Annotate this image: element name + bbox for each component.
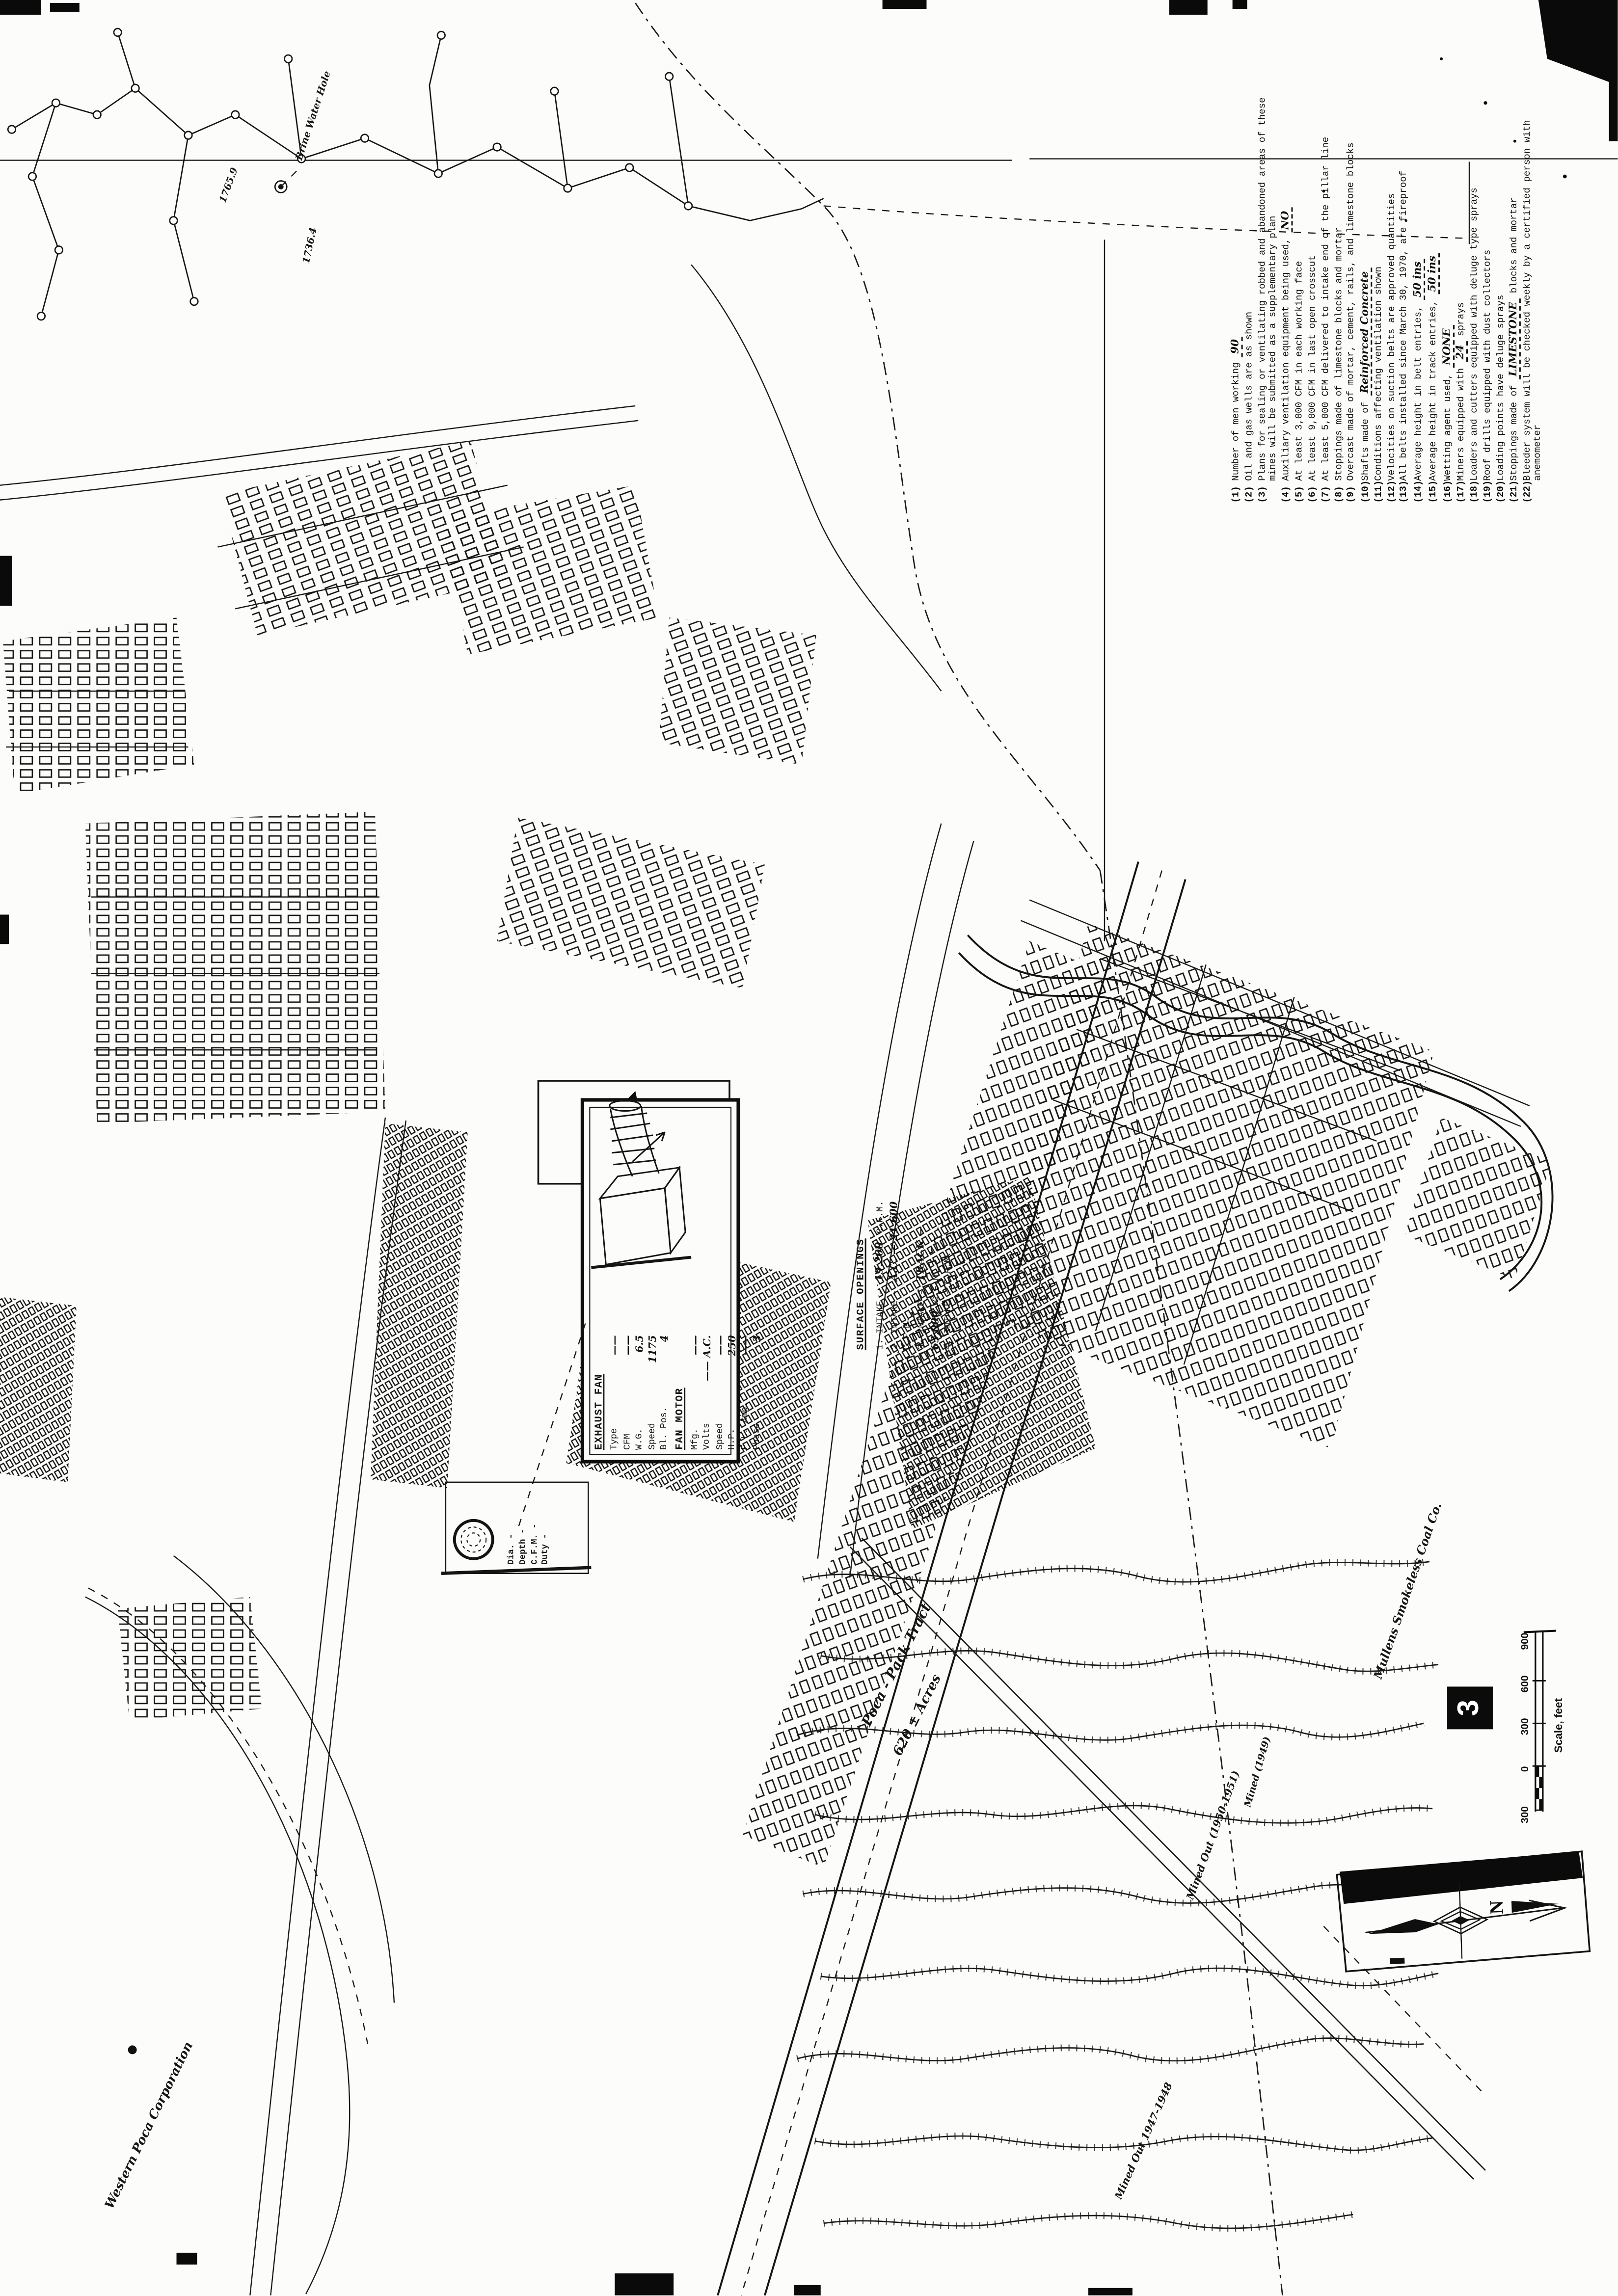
fan-row: Bl. Pos. 4 bbox=[659, 1335, 672, 1450]
note-item: (6)At least 9,000 CFM in last open cross… bbox=[1307, 94, 1318, 503]
scanned-sheet: 900 600 300 0 300 Scale, feet N bbox=[0, 0, 1618, 2296]
note-text: Overcast made of mortar, cement, rails, … bbox=[1346, 142, 1356, 481]
note-number: (4) bbox=[1282, 481, 1292, 503]
note-text: Stoppings made of bbox=[1510, 385, 1520, 481]
motor-field-label: H.P. bbox=[727, 1428, 739, 1450]
note-item: (9)Overcast made of mortar, cement, rail… bbox=[1346, 94, 1356, 503]
note-item: (20)Loading points have deluge sprays bbox=[1495, 94, 1506, 503]
fan-row: Type —— bbox=[609, 1335, 621, 1450]
fan-title: EXHAUST FAN bbox=[594, 1227, 607, 1450]
note-handwritten-value: NO bbox=[1279, 208, 1294, 233]
fan-field-value: —— bbox=[622, 1335, 634, 1355]
fan-motor-row: Speed —— bbox=[715, 1335, 727, 1450]
fan-rows: Type —— CFM —— W.G. 6.5 Speed bbox=[609, 1227, 672, 1450]
motor-field-label: Speed bbox=[715, 1423, 727, 1450]
scale-600: 600 bbox=[1519, 1675, 1531, 1692]
note-text: Average height in track entries, bbox=[1428, 300, 1438, 481]
note-item: (17)Miners equipped with 24 sprays bbox=[1455, 94, 1467, 503]
fan-field-value: —— bbox=[609, 1335, 621, 1355]
opening-quantity: A.C. — 21,600 bbox=[887, 1199, 900, 1284]
note-item: (14)Average height in belt entries, 50 i… bbox=[1412, 94, 1424, 503]
note-item: (15)Average height in track entries, 50 … bbox=[1427, 94, 1438, 503]
shaft-data-row: Depth - bbox=[517, 1488, 529, 1565]
shaft-data-panel: Dia. - Depth - C.F.M. - Duty - bbox=[506, 1488, 574, 1565]
note-handwritten-value: Reinforced Concrete bbox=[1357, 268, 1372, 397]
note-number: (16) bbox=[1442, 481, 1453, 503]
note-text: Wetting agent used, bbox=[1442, 374, 1453, 481]
fan-motor-title: FAN MOTOR bbox=[674, 1227, 687, 1450]
note-number: (1) bbox=[1231, 481, 1241, 503]
sheet-number: 3 bbox=[1453, 1700, 1487, 1716]
note-item: (18)Loaders and cutters equipped with de… bbox=[1470, 94, 1480, 503]
fan-field-label: Type bbox=[609, 1428, 621, 1450]
fan-motor-row: Phase 3 bbox=[752, 1335, 764, 1450]
note-item: (5)At least 3,000 CFM in each working fa… bbox=[1294, 94, 1305, 503]
brine-well-symbol bbox=[275, 168, 300, 193]
note-text: Miners equipped with bbox=[1456, 368, 1467, 481]
note-number: (14) bbox=[1414, 481, 1424, 503]
note-number: (17) bbox=[1456, 481, 1467, 503]
fan-row: CFM —— bbox=[622, 1335, 634, 1450]
note-item: (8)Stoppings made of limestone blocks an… bbox=[1333, 94, 1344, 503]
note-number: (7) bbox=[1321, 481, 1331, 503]
note-text: Bleeder system will be checked weekly by… bbox=[1523, 120, 1543, 481]
note-text: Shafts made of bbox=[1360, 402, 1371, 481]
fan-field-label: CFM bbox=[622, 1434, 634, 1450]
note-number: (15) bbox=[1428, 481, 1438, 503]
fan-motor-row: F.L. Amp. —— bbox=[740, 1335, 752, 1450]
note-number: (22) bbox=[1523, 481, 1533, 503]
note-text: Auxiliary ventilation equipment being us… bbox=[1282, 239, 1292, 481]
note-text: Conditions affecting ventilation shown bbox=[1374, 267, 1384, 481]
note-text: Oil and gas wells are as shown bbox=[1244, 312, 1254, 481]
note-handwritten-value: 24 bbox=[1454, 342, 1468, 362]
note-item: (1)Number of men working 90 bbox=[1230, 94, 1241, 503]
note-handwritten-value: 90 bbox=[1228, 336, 1243, 357]
note-text: All belts installed since March 30, 1970… bbox=[1399, 171, 1409, 481]
opening-label: 2. INTAKE - bbox=[890, 1290, 900, 1350]
motor-field-value: —— A.C. bbox=[702, 1335, 714, 1381]
note-number: (9) bbox=[1346, 481, 1356, 503]
note-number: (13) bbox=[1399, 481, 1409, 503]
note-number: (20) bbox=[1495, 481, 1506, 503]
fan-motor-row: Mfg. —— bbox=[690, 1335, 702, 1450]
fan-motor-row: Volts —— A.C. bbox=[702, 1335, 714, 1450]
opening-label: 4. INTAKE - bbox=[943, 1290, 953, 1350]
exhaust-fan-cartouche: EXHAUST FAN Type —— CFM —— W.G. bbox=[594, 1227, 729, 1450]
note-text: Stoppings made of limestone blocks and m… bbox=[1333, 227, 1344, 481]
mine-map-sheet: 900 600 300 0 300 Scale, feet N bbox=[0, 0, 1618, 2296]
note-item: (13)All belts installed since March 30, … bbox=[1399, 94, 1409, 503]
opening-unit: C.F.M. bbox=[902, 1317, 912, 1350]
surface-openings-rows: 1. INTAKE - 19,200 C.F.M. 2. INTAKE - A.… bbox=[872, 1194, 955, 1350]
surface-opening-row: 4. INTAKE - C.F.M. bbox=[943, 1194, 955, 1350]
fan-field-value: 1175 bbox=[647, 1335, 659, 1363]
scale-0: 0 bbox=[1519, 1766, 1531, 1772]
note-item: (12)Velocities on suction belts are appr… bbox=[1386, 94, 1397, 503]
motor-field-value: —— bbox=[715, 1335, 727, 1355]
scale-caption: Scale, feet bbox=[1552, 1698, 1564, 1753]
note-item: (4)Auxiliary ventilation equipment being… bbox=[1280, 94, 1292, 503]
surface-opening-row: 3. INTAKE - TRACK — 63,000 C.F.M. bbox=[914, 1194, 943, 1350]
note-text: Average height in belt entries, bbox=[1414, 306, 1424, 481]
note-item: (22)Bleeder system will be checked weekl… bbox=[1523, 94, 1544, 503]
motor-field-value: 250 bbox=[727, 1335, 739, 1356]
fan-motor-row: H.P. 250 bbox=[727, 1335, 739, 1450]
fan-row: Speed 1175 bbox=[647, 1335, 659, 1450]
shaft-data-rows: Dia. - Depth - C.F.M. - Duty - bbox=[506, 1488, 574, 1565]
surface-openings-panel: SURFACE OPENINGS 1. INTAKE - 19,200 C.F.… bbox=[856, 1194, 962, 1350]
note-item: (19)Roof drills equipped with dust colle… bbox=[1483, 94, 1493, 503]
scale-900: 900 bbox=[1519, 1633, 1531, 1650]
fan-field-label: Bl. Pos. bbox=[659, 1407, 672, 1450]
note-text: At least 3,000 CFM in each working face bbox=[1294, 261, 1305, 481]
note-handwritten-value: 50 ins bbox=[1411, 259, 1426, 300]
motor-field-value: —— bbox=[740, 1335, 752, 1355]
note-item: (21)Stoppings made of LIMESTONE blocks a… bbox=[1508, 94, 1520, 503]
note-number: (12) bbox=[1386, 481, 1397, 503]
fan-field-label: W.G. bbox=[634, 1428, 647, 1450]
note-number: (18) bbox=[1470, 481, 1480, 503]
note-text-after: blocks and mortar bbox=[1510, 197, 1520, 293]
note-handwritten-value: NONE bbox=[1439, 325, 1454, 368]
fan-field-label: Speed bbox=[647, 1423, 659, 1450]
opening-unit: C.F.M. bbox=[943, 1252, 953, 1284]
motor-field-label: Volts bbox=[702, 1423, 714, 1450]
scale-300b: 300 bbox=[1519, 1806, 1531, 1823]
scale-checker bbox=[1536, 1766, 1543, 1810]
note-item: (3)Plans for sealing or ventilating robb… bbox=[1257, 94, 1278, 503]
note-text: At least 5,000 CFM delivered to intake e… bbox=[1321, 137, 1331, 481]
scale-300a: 300 bbox=[1519, 1718, 1531, 1735]
note-handwritten-value: LIMESTONE bbox=[1507, 299, 1521, 379]
motor-field-value: —— bbox=[690, 1335, 702, 1355]
sheet-number-badge: 3 bbox=[1447, 1686, 1493, 1729]
note-number: (5) bbox=[1294, 481, 1305, 503]
note-number: (6) bbox=[1307, 481, 1318, 503]
shaft-data-row: Duty - bbox=[540, 1488, 552, 1565]
note-item: (10)Shafts made of Reinforced Concrete bbox=[1359, 94, 1371, 503]
notes-panel: (1)Number of men working 90 (2)Oil and g… bbox=[1230, 94, 1591, 503]
note-number: (21) bbox=[1510, 481, 1520, 503]
opening-label: 3. INTAKE - bbox=[917, 1290, 927, 1350]
note-number: (3) bbox=[1257, 481, 1267, 503]
note-item: (11)Conditions affecting ventilation sho… bbox=[1374, 94, 1384, 503]
motor-field-value: 3 bbox=[752, 1335, 764, 1342]
scale-bar: 900 600 300 0 300 Scale, feet bbox=[1519, 1631, 1564, 1823]
fan-field-value: 4 bbox=[659, 1335, 672, 1342]
opening-unit: C.F.M. bbox=[931, 1269, 942, 1302]
note-text: Loading points have deluge sprays bbox=[1495, 295, 1506, 481]
note-number: (10) bbox=[1360, 481, 1371, 503]
note-item: (16)Wetting agent used, NONE bbox=[1441, 94, 1453, 503]
street-grids bbox=[3, 441, 1552, 1868]
note-text: Loaders and cutters equipped with deluge… bbox=[1470, 187, 1480, 481]
north-letter: N bbox=[1486, 1900, 1508, 1915]
opening-unit: C.F.M. bbox=[875, 1201, 886, 1234]
motor-field-label: Phase bbox=[752, 1423, 764, 1450]
note-number: (19) bbox=[1483, 481, 1493, 503]
note-text-after: sprays bbox=[1456, 302, 1467, 336]
motor-field-label: Mfg. bbox=[690, 1428, 702, 1450]
opening-label: 1. INTAKE - bbox=[875, 1290, 886, 1350]
fan-motor-rows: Mfg. —— Volts —— A.C. Speed —— H.P. bbox=[690, 1227, 765, 1450]
note-number: (11) bbox=[1374, 481, 1384, 503]
north-arrow: N bbox=[1336, 1851, 1590, 1972]
shaft-data-row: Dia. - bbox=[506, 1488, 517, 1565]
surface-opening-row: 2. INTAKE - A.C. — 21,600 C.F.M. bbox=[887, 1194, 914, 1350]
fan-row: W.G. 6.5 bbox=[634, 1335, 647, 1450]
surface-openings-title: SURFACE OPENINGS bbox=[856, 1194, 869, 1350]
note-text: Velocities on suction belts are approved… bbox=[1386, 193, 1397, 481]
note-item: (2)Oil and gas wells are as shown bbox=[1244, 94, 1254, 503]
note-text: Plans for sealing or ventilating robbed … bbox=[1257, 97, 1277, 481]
shaft-data-row: C.F.M. - bbox=[529, 1488, 540, 1565]
note-number: (8) bbox=[1333, 481, 1344, 503]
note-text: Number of men working bbox=[1231, 362, 1241, 481]
opening-quantity: 19,200 bbox=[872, 1239, 886, 1284]
note-item: (7)At least 5,000 CFM delivered to intak… bbox=[1321, 94, 1331, 503]
notes-list: (1)Number of men working 90 (2)Oil and g… bbox=[1230, 94, 1591, 503]
fan-field-value: 6.5 bbox=[634, 1335, 647, 1352]
strip-mine-bands bbox=[85, 1556, 1438, 2294]
note-number: (2) bbox=[1244, 481, 1254, 503]
note-text: Roof drills equipped with dust collector… bbox=[1483, 250, 1493, 481]
note-handwritten-value: 50 ins bbox=[1425, 253, 1440, 294]
surface-opening-row: 1. INTAKE - 19,200 C.F.M. bbox=[872, 1194, 887, 1350]
motor-field-label: F.L. Amp. bbox=[740, 1401, 752, 1450]
note-text: At least 9,000 CFM in last open crosscut bbox=[1307, 255, 1318, 481]
